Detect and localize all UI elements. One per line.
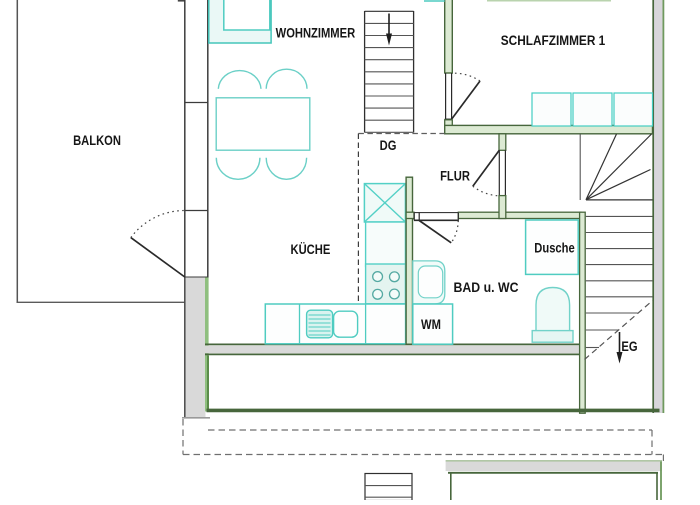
svg-text:BALKON: BALKON	[73, 133, 121, 148]
svg-text:BAD u. WC: BAD u. WC	[454, 279, 519, 295]
svg-text:Dusche: Dusche	[534, 240, 574, 255]
svg-text:KÜCHE: KÜCHE	[291, 241, 331, 258]
svg-text:EG: EG	[621, 339, 637, 354]
svg-text:SCHLAFZIMMER 1: SCHLAFZIMMER 1	[501, 32, 605, 48]
svg-text:WM: WM	[421, 317, 441, 332]
svg-text:WOHNZIMMER: WOHNZIMMER	[276, 25, 355, 40]
svg-text:DG: DG	[380, 138, 397, 153]
svg-text:FLUR: FLUR	[440, 168, 470, 183]
